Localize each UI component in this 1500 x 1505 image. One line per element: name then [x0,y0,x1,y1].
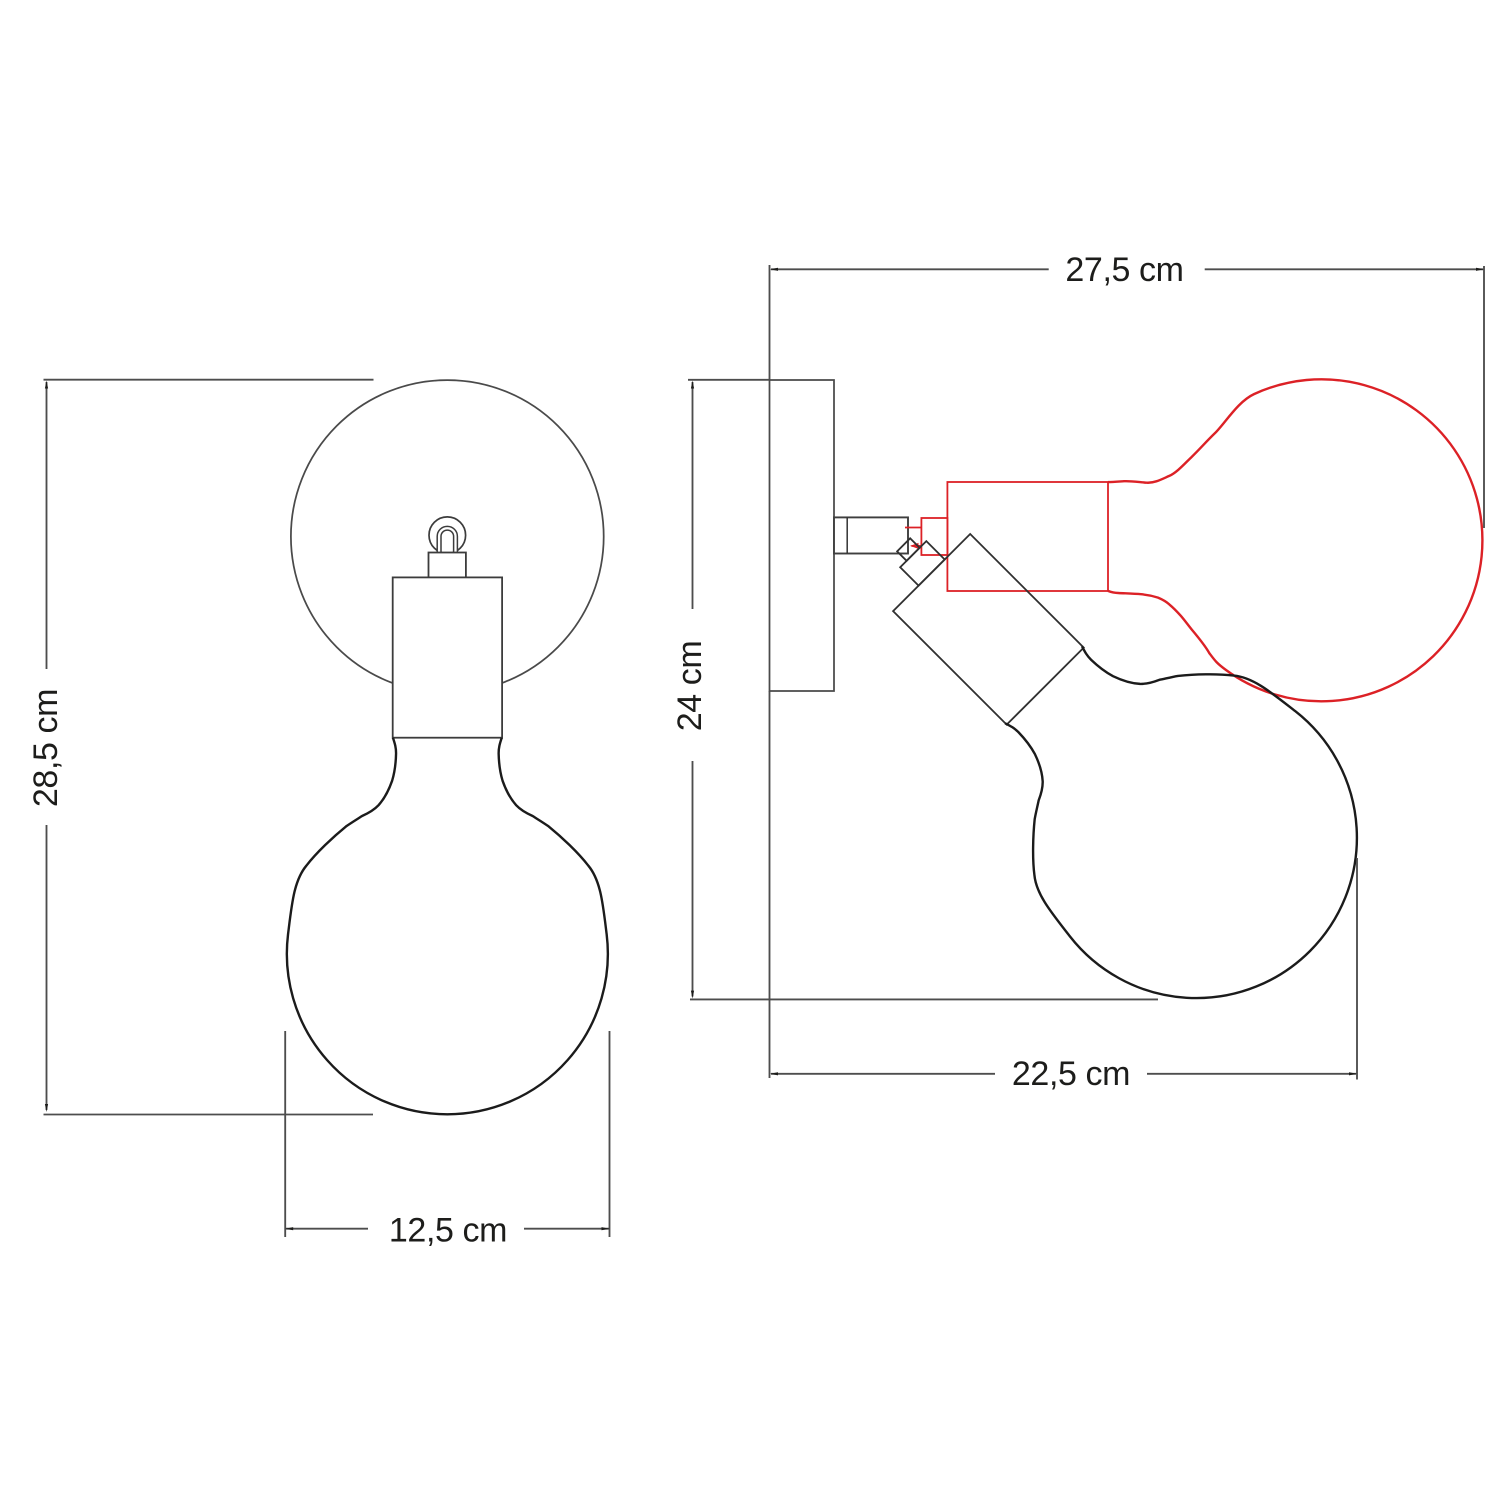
svg-text:12,5 cm: 12,5 cm [389,1212,507,1250]
svg-text:27,5 cm: 27,5 cm [1065,251,1183,289]
svg-text:28,5 cm: 28,5 cm [27,689,65,807]
svg-text:24 cm: 24 cm [671,641,709,732]
svg-text:22,5 cm: 22,5 cm [1012,1055,1130,1093]
